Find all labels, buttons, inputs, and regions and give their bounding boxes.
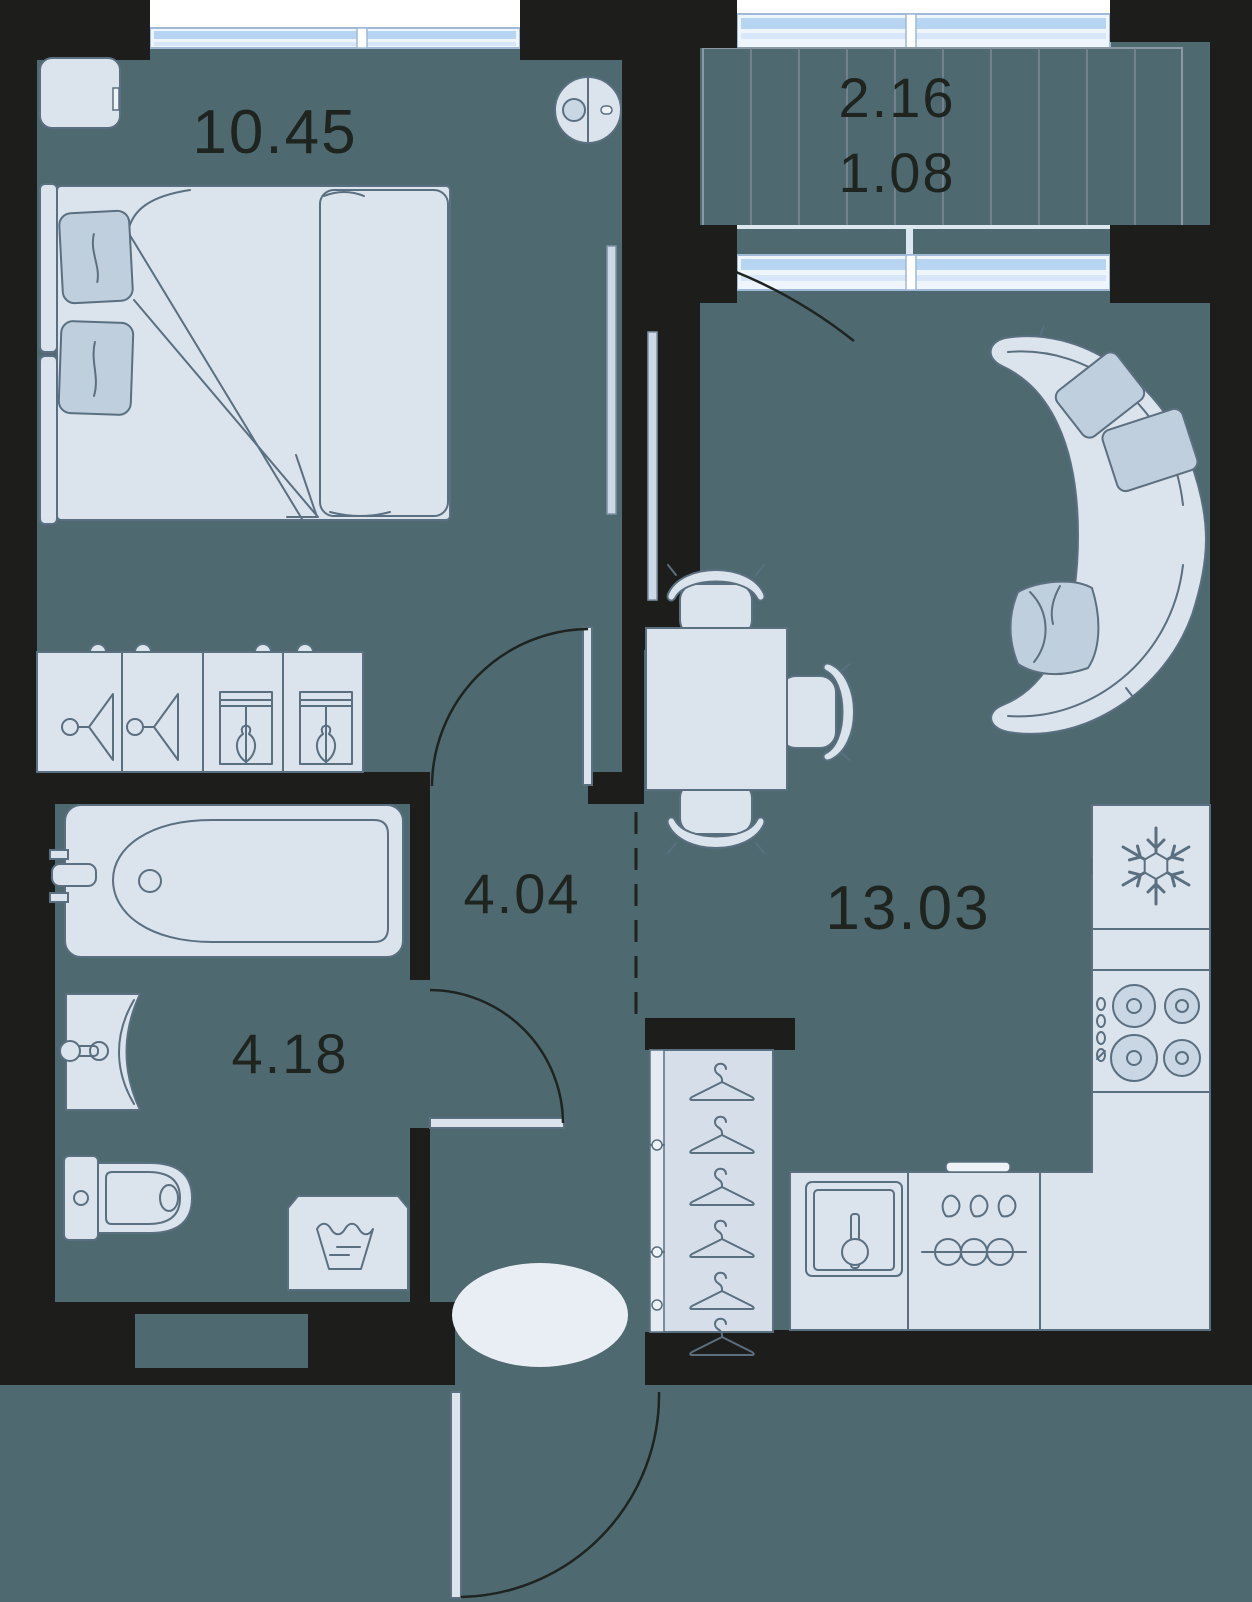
balcony-glazing-window-icon — [737, 14, 1110, 48]
hall-closet-icon — [650, 1050, 773, 1355]
balcony-window-door-icon — [737, 255, 1110, 290]
rug-icon — [452, 1263, 628, 1367]
double-bed-icon — [40, 184, 450, 524]
robot-vacuum-icon — [555, 77, 621, 143]
blanket-icon — [1011, 582, 1099, 674]
fridge-icon — [1084, 805, 1210, 929]
tv-icon — [607, 246, 616, 514]
balcony-area-label: 2.16 — [797, 70, 997, 126]
floor-plan: 10.45 2.16 1.08 13.03 4.04 4.18 — [0, 0, 1252, 1602]
wall-niche — [135, 1314, 308, 1368]
chair-icon — [780, 664, 854, 761]
pillow-icon — [58, 321, 133, 415]
bedroom-door-swing-icon — [432, 627, 592, 786]
bathtub-icon — [50, 805, 403, 957]
nightstand-icon — [40, 58, 120, 128]
dresser-icon — [37, 644, 363, 772]
outside-area — [150, 0, 520, 30]
duvet-icon — [320, 190, 448, 516]
hallway-area-label: 4.04 — [427, 866, 617, 922]
bathroom-area-label: 4.18 — [195, 1026, 385, 1082]
washing-machine-icon — [288, 1196, 408, 1290]
chair-icon — [668, 782, 765, 853]
wash-basin-icon — [60, 994, 140, 1110]
toilet-icon — [64, 1156, 192, 1240]
kitchen-living-area-label: 13.03 — [788, 878, 1028, 940]
entry-door-swing-icon — [451, 1392, 659, 1598]
tv-icon — [648, 332, 657, 600]
bedroom-window-icon — [150, 28, 520, 48]
bathroom-door-swing-icon — [430, 990, 564, 1128]
balcony-reduced-area-label: 1.08 — [797, 145, 997, 201]
curved-sofa-icon — [991, 326, 1206, 734]
floor-plan-drawing — [0, 0, 1252, 1602]
pillow-icon — [59, 210, 134, 304]
bedroom-area-label: 10.45 — [155, 102, 395, 164]
